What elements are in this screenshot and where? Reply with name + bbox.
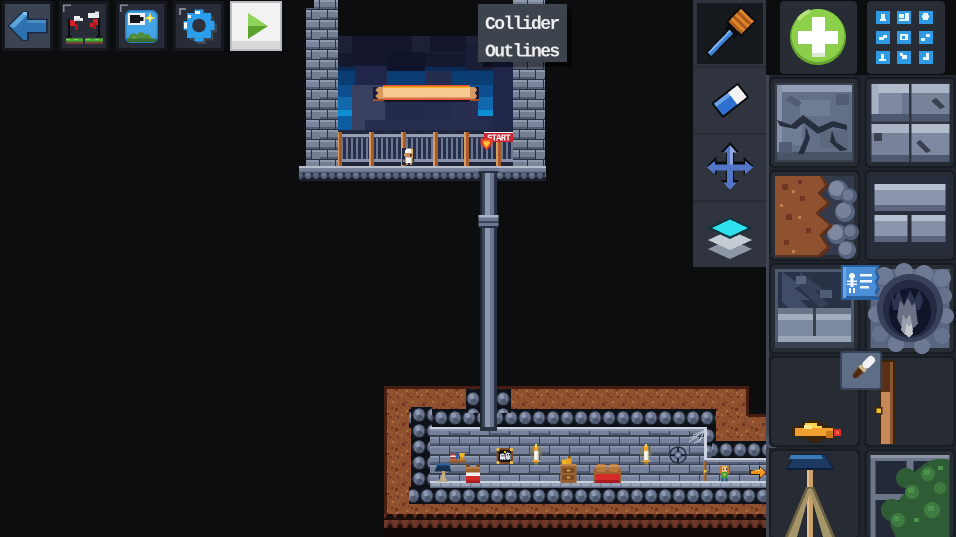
svg-text:Outlines: Outlines <box>485 43 559 63</box>
svg-text:Collider: Collider <box>485 15 559 35</box>
